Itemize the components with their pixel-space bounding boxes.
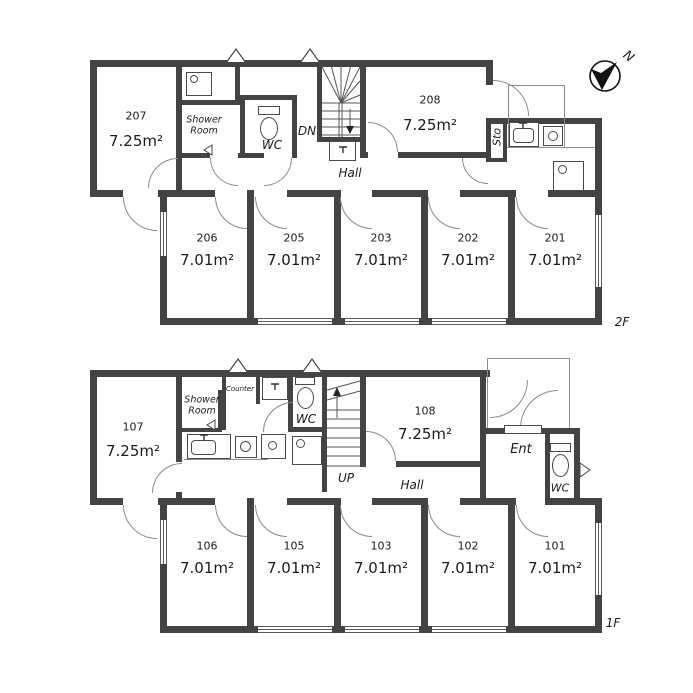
- room-102-number: 102: [458, 539, 479, 552]
- stairs-down: [322, 65, 360, 138]
- room-202-area: 7.01m²: [441, 251, 495, 269]
- room-208-area: 7.25m²: [403, 116, 457, 134]
- door-arc: [516, 505, 548, 537]
- door-arc: [264, 158, 292, 186]
- room-207-area: 7.25m²: [109, 132, 163, 150]
- door-arc: [428, 197, 460, 229]
- wall-segment: [292, 153, 297, 158]
- wall-segment: [486, 60, 493, 85]
- sink-basin: [191, 440, 216, 455]
- room-206-number: 206: [197, 231, 218, 244]
- wall-segment: [182, 100, 240, 105]
- room-103-area: 7.01m²: [354, 559, 408, 577]
- window: [160, 520, 167, 564]
- door-arc: [255, 197, 287, 229]
- room-205-area: 7.01m²: [267, 251, 321, 269]
- storage-label: Sto: [490, 128, 503, 146]
- room-106-area: 7.01m²: [180, 559, 234, 577]
- window: [345, 318, 419, 325]
- door-arc: [366, 431, 396, 461]
- wall-segment: [486, 428, 505, 434]
- door-arc: [215, 197, 247, 229]
- faucet-icon: [198, 432, 210, 442]
- wall-segment: [160, 190, 167, 325]
- room-203-area: 7.01m²: [354, 251, 408, 269]
- wall-segment: [421, 498, 428, 626]
- door-arc: [255, 505, 287, 537]
- hall-label: Hall: [400, 478, 423, 492]
- wall-segment: [334, 498, 341, 626]
- room-207-number: 207: [126, 109, 147, 122]
- window: [432, 626, 506, 633]
- wall-segment: [160, 498, 167, 633]
- door-arc: [123, 505, 157, 539]
- vent-icon: [298, 355, 326, 375]
- vanity-drain: [190, 75, 198, 83]
- door-arc: [215, 505, 247, 537]
- toilet-icon: [550, 443, 571, 452]
- wall-segment: [548, 190, 602, 197]
- wall-segment: [256, 370, 260, 404]
- stove-burner: [240, 441, 251, 452]
- room-101-number: 101: [545, 539, 566, 552]
- door-arc: [148, 158, 178, 188]
- wall-segment: [548, 498, 602, 505]
- washing-machine-drain: [558, 165, 567, 174]
- counter-label: Counter: [226, 385, 254, 393]
- outswing-door-icon: [579, 462, 591, 478]
- entry-door-leaf: [504, 425, 542, 434]
- wall-segment: [480, 428, 486, 505]
- wall-segment: [247, 190, 254, 318]
- room-106-number: 106: [197, 539, 218, 552]
- wall-segment: [360, 152, 368, 158]
- wall-segment: [360, 60, 366, 158]
- door-arc: [462, 158, 488, 184]
- wc-label: WC: [296, 412, 316, 426]
- room-101-area: 7.01m²: [528, 559, 582, 577]
- wall-segment: [486, 158, 507, 162]
- wall-segment: [360, 461, 366, 467]
- shower-room-label: Shower Room: [184, 395, 219, 418]
- toilet-bowl: [297, 387, 314, 409]
- room-203-number: 203: [371, 231, 392, 244]
- room-108-area: 7.25m²: [398, 425, 452, 443]
- room-208-number: 208: [420, 93, 441, 106]
- vent-icon: [296, 45, 324, 65]
- stairs-up: [327, 378, 360, 474]
- room-107-number: 107: [123, 420, 144, 433]
- counter-edge: [184, 459, 268, 460]
- shower-room-label: Shower Room: [186, 115, 221, 138]
- room-205-number: 205: [284, 231, 305, 244]
- room-202-number: 202: [458, 231, 479, 244]
- wall-segment: [292, 95, 297, 158]
- wall-segment: [90, 190, 123, 197]
- sliding-door-icon: [203, 144, 213, 156]
- door-arc: [516, 197, 548, 229]
- faucet-icon: [269, 381, 281, 391]
- door-arc: [152, 463, 182, 493]
- wall-segment: [508, 498, 515, 626]
- room-108-number: 108: [415, 404, 436, 417]
- wall-segment: [247, 498, 254, 626]
- wall-segment: [334, 190, 341, 318]
- door-arc: [263, 402, 293, 432]
- wall-segment: [90, 370, 97, 505]
- floor-2-label: 2F: [615, 315, 630, 329]
- washing-machine-drain: [296, 439, 305, 448]
- wall-segment: [238, 153, 264, 158]
- stove-burner: [548, 131, 558, 141]
- wall-segment: [240, 95, 245, 158]
- wall-segment: [421, 190, 428, 318]
- wall-segment: [222, 370, 226, 430]
- wall-segment: [372, 498, 428, 505]
- wall-segment: [372, 190, 428, 197]
- toilet-bowl: [260, 117, 278, 140]
- sliding-door-icon: [206, 419, 216, 431]
- room-105-number: 105: [284, 539, 305, 552]
- window: [345, 626, 419, 633]
- faucet-icon: [337, 144, 349, 154]
- wall-segment: [480, 370, 486, 428]
- door-arc: [340, 197, 372, 229]
- appliance-drain: [268, 441, 277, 450]
- wc2-label: WC: [551, 481, 570, 494]
- room-201-number: 201: [545, 231, 566, 244]
- window: [595, 215, 602, 287]
- washing-machine-icon: [553, 161, 584, 191]
- room-105-area: 7.01m²: [267, 559, 321, 577]
- up-label: UP: [338, 471, 354, 485]
- vent-icon: [224, 355, 252, 375]
- toilet-icon: [295, 377, 315, 385]
- wc-label: WC: [262, 138, 282, 152]
- room-102-area: 7.01m²: [441, 559, 495, 577]
- wall-segment: [90, 498, 123, 505]
- faucet-icon: [517, 120, 529, 130]
- floor-plan: N: [0, 0, 693, 693]
- entrance-label: Ent: [510, 442, 532, 458]
- window: [160, 212, 167, 256]
- door-arc: [340, 505, 372, 537]
- room-103-number: 103: [371, 539, 392, 552]
- door-arc: [428, 505, 460, 537]
- wall-segment: [545, 428, 550, 505]
- room-107-area: 7.25m²: [106, 442, 160, 460]
- counter-edge: [507, 147, 595, 148]
- door-arc: [210, 158, 238, 186]
- door-arc: [123, 197, 157, 231]
- door-arc: [368, 122, 398, 152]
- wall-segment: [90, 60, 493, 67]
- toilet-icon: [258, 106, 280, 115]
- window: [595, 523, 602, 595]
- wall-segment: [287, 190, 340, 197]
- room-206-area: 7.01m²: [180, 251, 234, 269]
- wall-segment: [287, 498, 340, 505]
- wall-segment: [240, 95, 297, 100]
- toilet-bowl: [552, 454, 569, 477]
- floor-1-label: 1F: [606, 616, 621, 630]
- vent-icon: [222, 45, 250, 65]
- window: [432, 318, 506, 325]
- hall-label: Hall: [338, 166, 361, 180]
- window: [258, 626, 332, 633]
- window: [258, 318, 332, 325]
- wall-segment: [176, 370, 182, 462]
- wall-segment: [503, 118, 507, 162]
- wall-segment: [508, 190, 515, 318]
- wall-segment: [90, 60, 97, 197]
- wall-segment: [396, 461, 486, 467]
- sink-basin: [513, 128, 534, 143]
- dn-label: DN: [298, 124, 316, 138]
- room-201-area: 7.01m²: [528, 251, 582, 269]
